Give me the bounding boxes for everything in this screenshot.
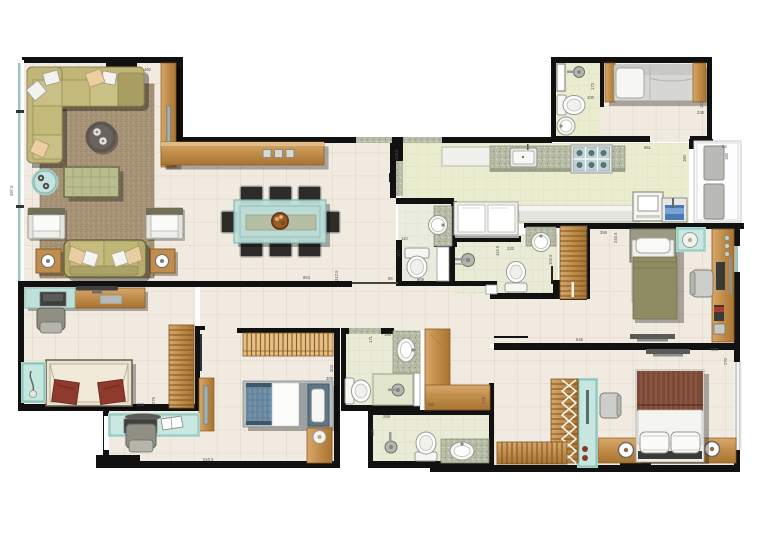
svg-text:120: 120 (370, 428, 375, 436)
svg-text:853: 853 (303, 275, 311, 280)
svg-text:95: 95 (388, 276, 393, 281)
svg-text:100: 100 (587, 95, 595, 100)
svg-text:276: 276 (151, 396, 156, 404)
svg-text:110: 110 (401, 236, 408, 241)
svg-text:150: 150 (427, 402, 435, 407)
svg-text:268: 268 (383, 414, 391, 419)
svg-text:308: 308 (137, 402, 145, 407)
svg-text:240.5: 240.5 (613, 232, 618, 243)
svg-text:545: 545 (576, 337, 584, 342)
svg-text:497.5: 497.5 (9, 185, 14, 196)
svg-text:180: 180 (682, 154, 687, 162)
svg-text:278: 278 (481, 396, 486, 404)
svg-text:312.5: 312.5 (334, 270, 339, 281)
svg-text:173: 173 (590, 82, 595, 90)
svg-text:172: 172 (699, 100, 704, 108)
svg-text:236: 236 (697, 110, 705, 115)
svg-text:171: 171 (368, 335, 373, 343)
svg-text:186: 186 (384, 332, 392, 337)
svg-text:232: 232 (507, 246, 515, 251)
svg-text:270: 270 (723, 357, 728, 365)
svg-text:102.5: 102.5 (548, 254, 553, 265)
svg-text:112.5: 112.5 (495, 245, 500, 256)
svg-text:661: 661 (644, 145, 652, 150)
svg-text:395: 395 (600, 230, 608, 235)
svg-text:669: 669 (417, 277, 425, 282)
svg-text:303: 303 (329, 364, 334, 372)
svg-text:545: 545 (711, 347, 719, 352)
svg-text:309: 309 (326, 376, 334, 381)
svg-text:128.5: 128.5 (394, 149, 399, 160)
svg-text:172: 172 (396, 249, 401, 257)
svg-text:88: 88 (722, 144, 727, 149)
svg-text:462: 462 (144, 67, 152, 72)
svg-text:510.5: 510.5 (203, 457, 214, 462)
svg-text:180: 180 (724, 152, 729, 160)
